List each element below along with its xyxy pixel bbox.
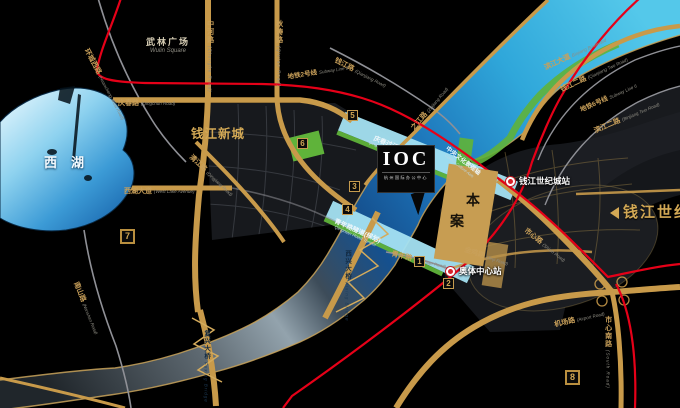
badge-1: 1 <box>414 256 425 267</box>
ioc-logo-subtext: 杭州国际办公中心 <box>382 172 430 181</box>
location-map: 西湖 武林广场 Wulin Square 钱江新城 钱江世纪城 环城西路(Hua… <box>0 0 680 408</box>
badge-2: 2 <box>443 278 454 289</box>
road-label-shixin-south: 市心南路(South Road) <box>599 316 617 389</box>
bridge-label-xixing: 西兴大桥Xixing Bridge <box>338 250 356 322</box>
west-lake-label: 西湖 <box>44 156 98 170</box>
qianjiang-new-town-label: 钱江新城 <box>191 128 245 142</box>
road-label-qiutao: 秋涛路(Qiutao Road) <box>270 20 288 87</box>
left-arrow-icon <box>610 207 619 219</box>
badge-8: 8 <box>565 370 580 385</box>
ioc-logo: IOC 杭州国际办公中心 <box>377 145 435 193</box>
badge-7: 7 <box>120 229 135 244</box>
badge-6: 6 <box>297 138 308 149</box>
metro-station-icon <box>505 176 516 187</box>
badge-5: 5 <box>347 110 358 121</box>
badge-3: 3 <box>349 181 360 192</box>
station-qianjiang-century-city: 钱江世纪城站 <box>505 176 570 187</box>
site-marker-char-2: 案 <box>450 211 464 231</box>
ioc-logo-text: IOC <box>378 148 434 171</box>
badge-4: 4 <box>342 204 353 215</box>
qianjiang-century-city-label: 钱江世纪城 <box>610 205 680 222</box>
site-marker-char-1: 本 <box>466 190 480 210</box>
road-label-zhonghe: 中河路(Zhonghe Road) <box>201 20 219 93</box>
metro-station-icon <box>445 266 456 277</box>
road-label-west-lake-avenue: 西湖大道(West Lake Avenue) <box>124 180 194 198</box>
station-olympic-center: 奥体中心站 <box>445 266 502 277</box>
road-label-qingchun: 庆春路(Qingchun Road) <box>118 92 175 110</box>
wulin-square-label: 武林广场 Wulin Square <box>146 38 190 54</box>
bridge-label-fuxing: 复兴大桥Fuxing Bridge <box>197 330 215 403</box>
